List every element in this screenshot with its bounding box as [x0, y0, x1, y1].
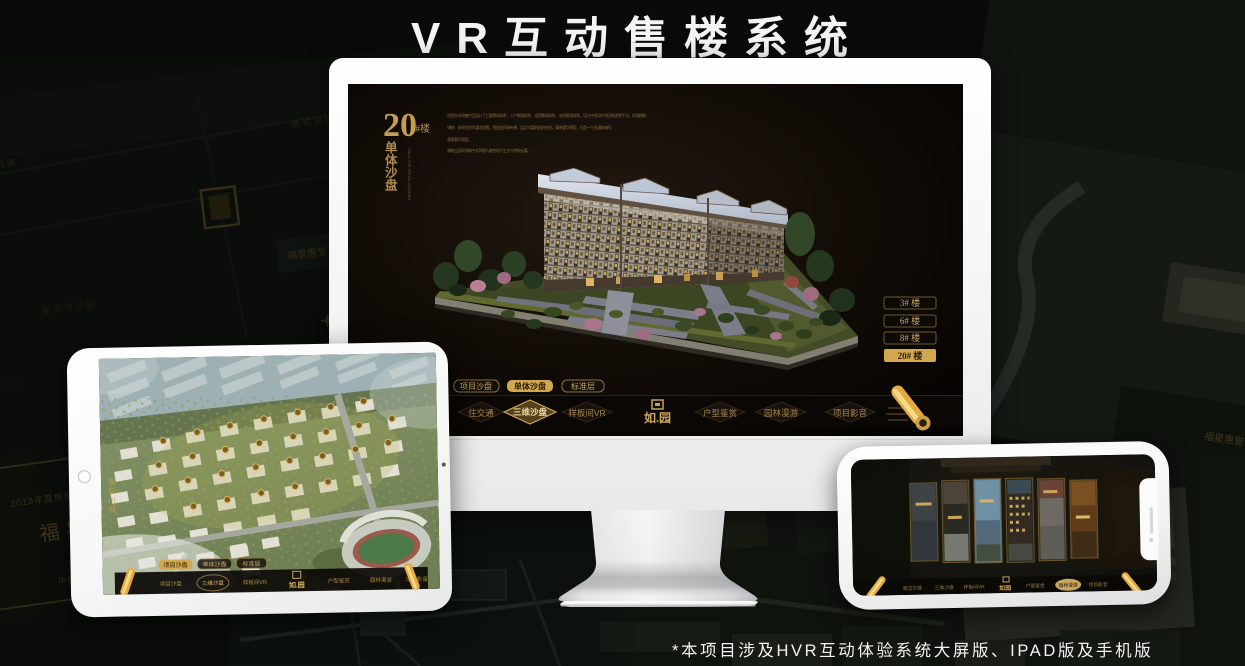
svg-text:项目针对改善产品设计了三重景观体系：入户景观体系、组团景观体: 项目针对改善产品设计了三重景观体系：入户景观体系、组团景观体系、宅间景观体系，设…	[447, 112, 647, 119]
svg-text:VILLA THE ROYAL GARDEN: VILLA THE ROYAL GARDEN	[407, 148, 412, 200]
svg-text:8# 楼: 8# 楼	[900, 332, 920, 343]
svg-text:建筑立面采用新中式风格人融合现代工艺与传统元素。: 建筑立面采用新中式风格人融合现代工艺与传统元素。	[447, 147, 531, 154]
svg-text:6# 楼: 6# 楼	[900, 315, 920, 326]
svg-text:样板间VR: 样板间VR	[568, 408, 605, 418]
svg-text:标准层: 标准层	[571, 381, 595, 391]
svg-text:盘: 盘	[385, 178, 398, 193]
svg-text:项目影音: 项目影音	[833, 408, 868, 418]
svg-text:20# 楼: 20# 楼	[898, 350, 923, 361]
svg-text:单体沙盘: 单体沙盘	[514, 381, 546, 391]
svg-text:展区三期: 展区三期	[107, 479, 116, 515]
svg-text:园林漫游: 园林漫游	[764, 408, 799, 418]
svg-text:项目沙盘: 项目沙盘	[460, 381, 492, 391]
svg-text:如园: 如园	[999, 584, 1011, 592]
svg-text:户型鉴赏: 户型鉴赏	[703, 408, 737, 418]
svg-text:住交通: 住交通	[468, 408, 494, 418]
svg-text:三维沙盘: 三维沙盘	[513, 407, 548, 417]
svg-text:20: 20	[383, 107, 417, 144]
svg-text:#楼: #楼	[415, 122, 430, 135]
svg-text:如.园: 如.园	[289, 580, 305, 589]
svg-text:如.园: 如.园	[644, 410, 671, 425]
svg-text:铺装、多样化乔木灌木配置，营造出四季有景、层次丰富的园林空间: 铺装、多样化乔木灌木配置，营造出四季有景、层次丰富的园林空间，尊贵奢华感受，打造…	[447, 124, 614, 131]
svg-text:3# 楼: 3# 楼	[900, 297, 920, 308]
svg-text:尊贵奢华感受。: 尊贵奢华感受。	[447, 136, 471, 143]
